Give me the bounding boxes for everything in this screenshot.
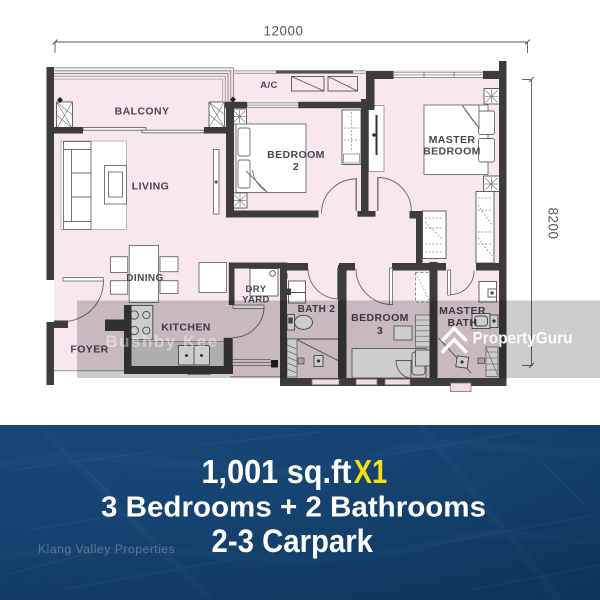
svg-text:Bushby Kee: Bushby Kee	[105, 332, 218, 351]
svg-text:2: 2	[293, 161, 299, 173]
svg-text:12000: 12000	[263, 24, 303, 39]
svg-text:1,001 sq.ft: 1,001 sq.ft	[202, 453, 352, 490]
svg-text:Klang Valley Properties: Klang Valley Properties	[38, 542, 175, 556]
svg-text:BEDROOM: BEDROOM	[423, 146, 481, 158]
svg-text:X1: X1	[354, 453, 388, 490]
svg-text:3 Bedrooms + 2 Bathrooms: 3 Bedrooms + 2 Bathrooms	[101, 492, 486, 524]
svg-text:PropertyGuru: PropertyGuru	[473, 330, 573, 348]
svg-text:2-3 Carpark: 2-3 Carpark	[212, 523, 374, 559]
svg-text:BEDROOM: BEDROOM	[267, 149, 325, 161]
svg-text:MASTER: MASTER	[429, 134, 476, 146]
svg-text:A/C: A/C	[260, 80, 278, 91]
svg-text:DINING: DINING	[126, 273, 163, 284]
svg-text:8200: 8200	[546, 207, 561, 239]
svg-text:BALCONY: BALCONY	[115, 106, 170, 118]
svg-text:LIVING: LIVING	[132, 181, 169, 193]
svg-text:DRY: DRY	[246, 284, 267, 295]
